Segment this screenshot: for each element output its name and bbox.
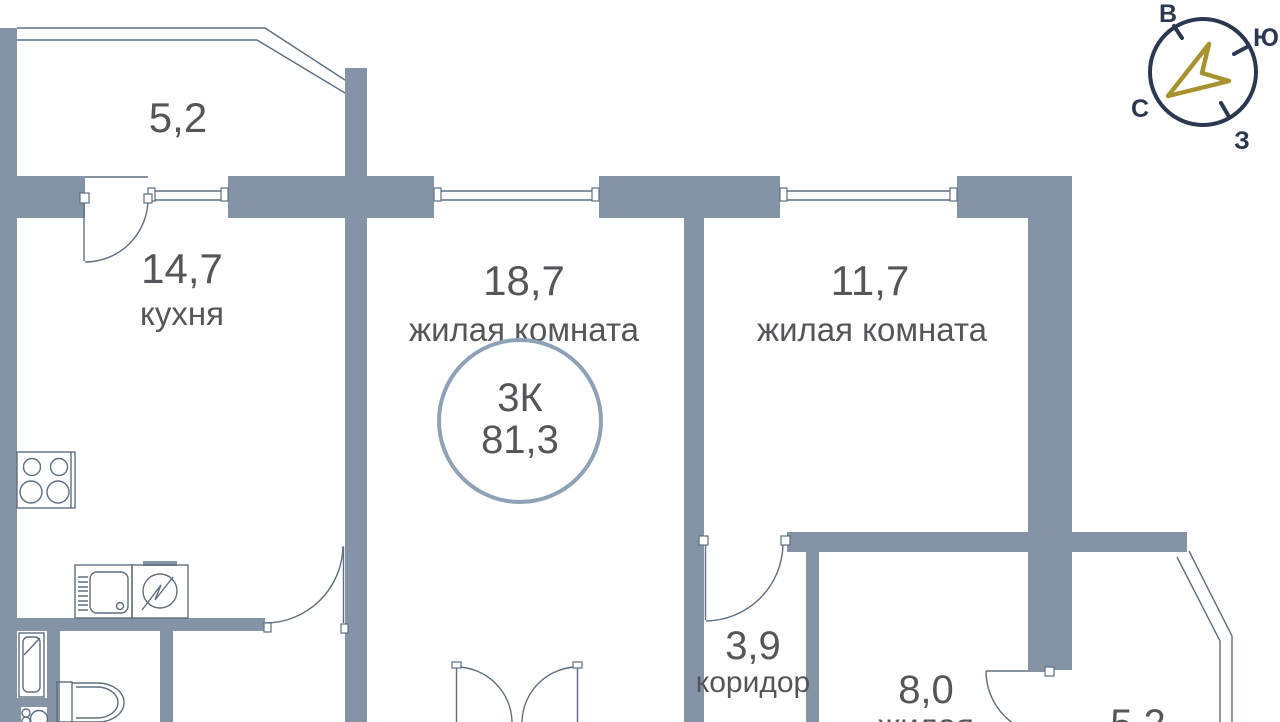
badge-area-label: 81,3 xyxy=(481,418,559,462)
wall-segment xyxy=(17,618,265,631)
wall-segment xyxy=(957,176,1072,218)
door-swing xyxy=(264,546,348,633)
room-area-label: 8,0 xyxy=(898,668,954,712)
room-name-label: жилая комната xyxy=(757,311,988,348)
balcony-top-outer-line xyxy=(17,28,345,80)
kitchen-sink xyxy=(75,565,132,618)
door-swing xyxy=(986,667,1054,722)
bathtub xyxy=(19,633,44,697)
wall-segment xyxy=(0,176,85,218)
washing-machine xyxy=(132,561,188,618)
room-area-label: 11,7 xyxy=(831,257,910,304)
compass-needle-icon xyxy=(1168,44,1229,96)
apartment-badge: 3К 81,3 xyxy=(439,340,601,502)
room-area-label: 3,9 xyxy=(725,624,781,668)
floor-plan: 5,2 14,7 кухня 18,7 жилая комната 11,7 ж… xyxy=(0,0,1280,722)
stove xyxy=(17,452,75,508)
double-door-swing xyxy=(452,662,582,722)
window xyxy=(434,188,599,201)
badge-rooms-label: 3К xyxy=(497,376,543,420)
compass-letter-left: С xyxy=(1131,95,1149,123)
compass-ticks xyxy=(1174,26,1247,115)
room-name-label: кухня xyxy=(140,295,224,332)
wall-segment xyxy=(787,532,1187,552)
toilet xyxy=(57,682,124,722)
window xyxy=(148,188,228,201)
compass-letter-bottom: З xyxy=(1234,127,1250,155)
room-name-label: коридор xyxy=(696,666,810,699)
door-swing xyxy=(699,536,790,621)
compass-letter-top: В xyxy=(1159,0,1177,28)
wall-segment xyxy=(47,631,60,722)
balcony-bottom-outer-line xyxy=(1189,551,1232,722)
room-area-label: 5,2 xyxy=(149,94,207,141)
room-area-label: 5,2 xyxy=(1110,702,1166,722)
wall-segment xyxy=(345,68,367,176)
wall-segment xyxy=(228,176,434,218)
compass: В Ю С З xyxy=(1131,0,1279,155)
wall-segment xyxy=(160,631,173,722)
wall-segment xyxy=(0,28,17,722)
room-name-label: жилая xyxy=(878,707,974,722)
room-area-label: 18,7 xyxy=(483,257,565,304)
compass-letter-right: Ю xyxy=(1253,24,1279,52)
wall-segment xyxy=(345,218,367,722)
room-area-label: 14,7 xyxy=(141,245,223,292)
wall-segment xyxy=(599,176,780,218)
window xyxy=(780,188,957,201)
wall-segment xyxy=(684,218,704,722)
wall-segment xyxy=(1028,218,1072,670)
balcony-bottom-inner-line xyxy=(1177,557,1220,722)
